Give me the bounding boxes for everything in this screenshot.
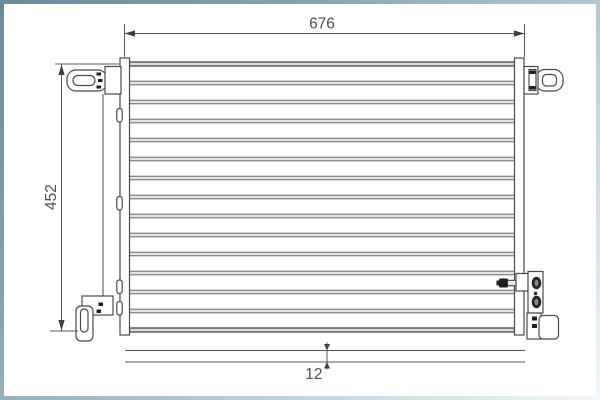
- bracket-block: [105, 67, 121, 95]
- width-dimension-label: 676: [309, 16, 335, 33]
- condenser-technical-drawing: 676 452 12: [4, 4, 596, 396]
- bracket-rivet: [99, 303, 104, 307]
- lower-bracket-block: [539, 316, 559, 340]
- bottom-left-mounting-bracket: [76, 296, 113, 341]
- screenshot-frame: 676 452 12: [0, 0, 600, 400]
- tank-clip: [117, 280, 122, 294]
- depth-profile-view: 12: [125, 343, 525, 384]
- service-valve-head: [499, 279, 508, 288]
- core-tube: [130, 271, 515, 275]
- core-tube: [130, 100, 515, 104]
- core-tubes: [130, 81, 515, 313]
- arrowhead-bottom: [58, 320, 64, 331]
- drawing-canvas: 676 452 12: [4, 4, 596, 396]
- depth-dimension-label: 12: [305, 366, 322, 383]
- bracket-slot: [81, 309, 89, 332]
- bracket-rivet: [532, 324, 537, 328]
- arrowhead-right: [514, 30, 525, 36]
- core-top-edge: [130, 62, 515, 66]
- core-tube: [130, 138, 515, 142]
- tank-clip: [117, 302, 122, 316]
- width-dimension: 676: [125, 16, 525, 58]
- front-view: [67, 58, 563, 341]
- top-left-mounting-bracket: [67, 67, 121, 95]
- port-plate-pin: [534, 292, 537, 295]
- refrigerant-port-center: [535, 280, 539, 286]
- bracket-rivet: [97, 73, 102, 76]
- top-right-mounting-bracket: [524, 67, 563, 95]
- bracket-slot: [73, 76, 95, 86]
- core-tube: [130, 233, 515, 237]
- core-tube: [130, 195, 515, 199]
- tank-clip: [117, 109, 122, 123]
- core-tube: [130, 176, 515, 180]
- right-tank: [515, 58, 525, 335]
- bracket-slot: [543, 75, 557, 87]
- height-dimension-label: 452: [43, 184, 60, 210]
- core-tube: [130, 157, 515, 161]
- arrowhead-down: [324, 344, 330, 351]
- core-tube: [130, 214, 515, 218]
- bracket-rivet: [530, 71, 536, 75]
- bracket-rivet: [98, 79, 103, 82]
- tank-clip: [117, 197, 122, 211]
- height-dimension: 452: [43, 64, 119, 331]
- core-tube: [130, 309, 515, 313]
- bracket-rivet: [530, 86, 536, 90]
- bracket-rivet: [97, 86, 102, 89]
- bracket-rivet: [532, 317, 537, 321]
- refrigerant-port-center: [535, 299, 539, 305]
- bracket-rivet: [97, 310, 102, 314]
- core-bottom-edge: [130, 328, 515, 332]
- arrowhead-top: [58, 65, 64, 76]
- core-tube: [130, 252, 515, 256]
- core-tube: [130, 81, 515, 85]
- core-tube: [130, 119, 515, 123]
- core-tube: [130, 290, 515, 294]
- arrowhead-up: [324, 362, 330, 369]
- arrowhead-left: [125, 30, 136, 36]
